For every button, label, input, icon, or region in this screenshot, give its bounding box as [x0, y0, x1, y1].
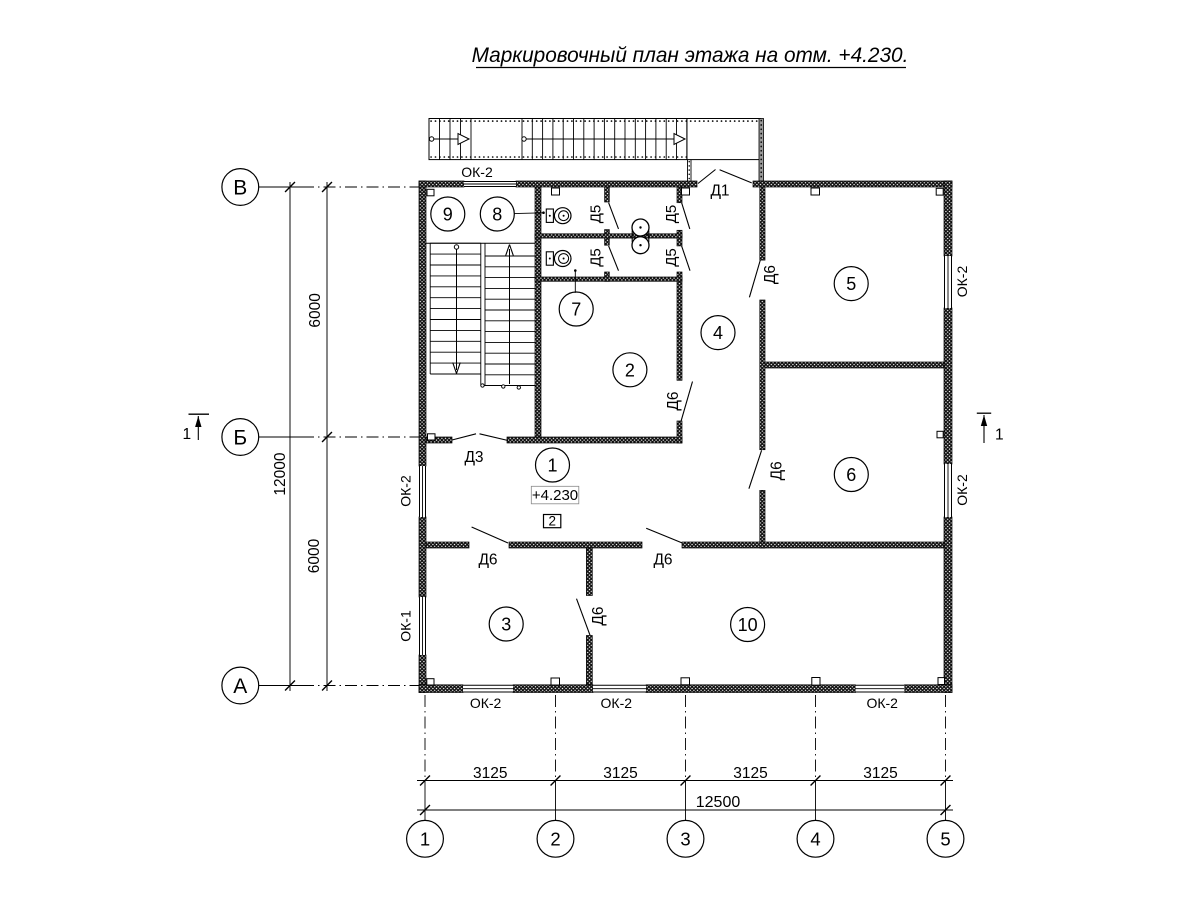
svg-text:8: 8: [492, 205, 502, 225]
svg-text:10: 10: [738, 615, 758, 635]
svg-text:6000: 6000: [307, 293, 324, 328]
svg-text:+4.230: +4.230: [532, 487, 578, 504]
svg-text:ОК-2: ОК-2: [398, 475, 414, 507]
svg-text:В: В: [233, 176, 247, 199]
svg-text:ОК-2: ОК-2: [954, 474, 970, 506]
svg-text:2: 2: [625, 360, 635, 380]
svg-text:Д6: Д6: [478, 552, 497, 569]
svg-text:12000: 12000: [272, 452, 289, 495]
svg-text:Д3: Д3: [464, 449, 483, 466]
svg-text:5: 5: [940, 829, 950, 850]
svg-text:4: 4: [810, 829, 820, 850]
svg-text:1: 1: [547, 456, 557, 476]
svg-text:3125: 3125: [473, 765, 507, 782]
svg-text:ОК-2: ОК-2: [470, 695, 502, 711]
svg-text:3125: 3125: [733, 765, 767, 782]
svg-text:1: 1: [182, 426, 191, 443]
svg-text:ОК-2: ОК-2: [461, 164, 493, 180]
svg-text:7: 7: [571, 300, 581, 320]
svg-text:Д6: Д6: [769, 461, 786, 480]
svg-text:3: 3: [501, 615, 511, 635]
svg-text:6: 6: [846, 465, 856, 485]
svg-text:Д5: Д5: [588, 205, 605, 224]
svg-text:А: А: [233, 675, 247, 698]
svg-text:4: 4: [713, 323, 723, 343]
svg-text:1: 1: [995, 427, 1004, 444]
svg-text:9: 9: [443, 205, 453, 225]
svg-text:2: 2: [548, 514, 556, 529]
svg-text:Д6: Д6: [653, 552, 672, 569]
svg-text:Маркировочный план этажа на от: Маркировочный план этажа на отм. +4.230.: [472, 44, 909, 67]
svg-text:ОК-2: ОК-2: [954, 266, 970, 298]
svg-text:5: 5: [846, 274, 856, 294]
svg-text:Д5: Д5: [588, 248, 605, 267]
svg-text:2: 2: [550, 829, 560, 850]
svg-text:12500: 12500: [696, 794, 741, 811]
svg-text:Д1: Д1: [710, 183, 729, 200]
svg-text:3125: 3125: [603, 765, 637, 782]
svg-text:ОК-2: ОК-2: [866, 695, 898, 711]
svg-text:Д5: Д5: [663, 205, 680, 224]
svg-text:Д6: Д6: [762, 265, 779, 284]
svg-text:ОК-1: ОК-1: [398, 610, 414, 642]
svg-text:Д6: Д6: [665, 391, 682, 410]
svg-text:Б: Б: [233, 426, 247, 449]
svg-text:3: 3: [680, 829, 690, 850]
svg-text:3125: 3125: [863, 765, 897, 782]
svg-text:Д5: Д5: [663, 248, 680, 267]
svg-text:6000: 6000: [306, 538, 323, 573]
svg-text:1: 1: [420, 829, 430, 850]
svg-text:ОК-2: ОК-2: [601, 695, 633, 711]
svg-text:Д6: Д6: [590, 606, 607, 625]
